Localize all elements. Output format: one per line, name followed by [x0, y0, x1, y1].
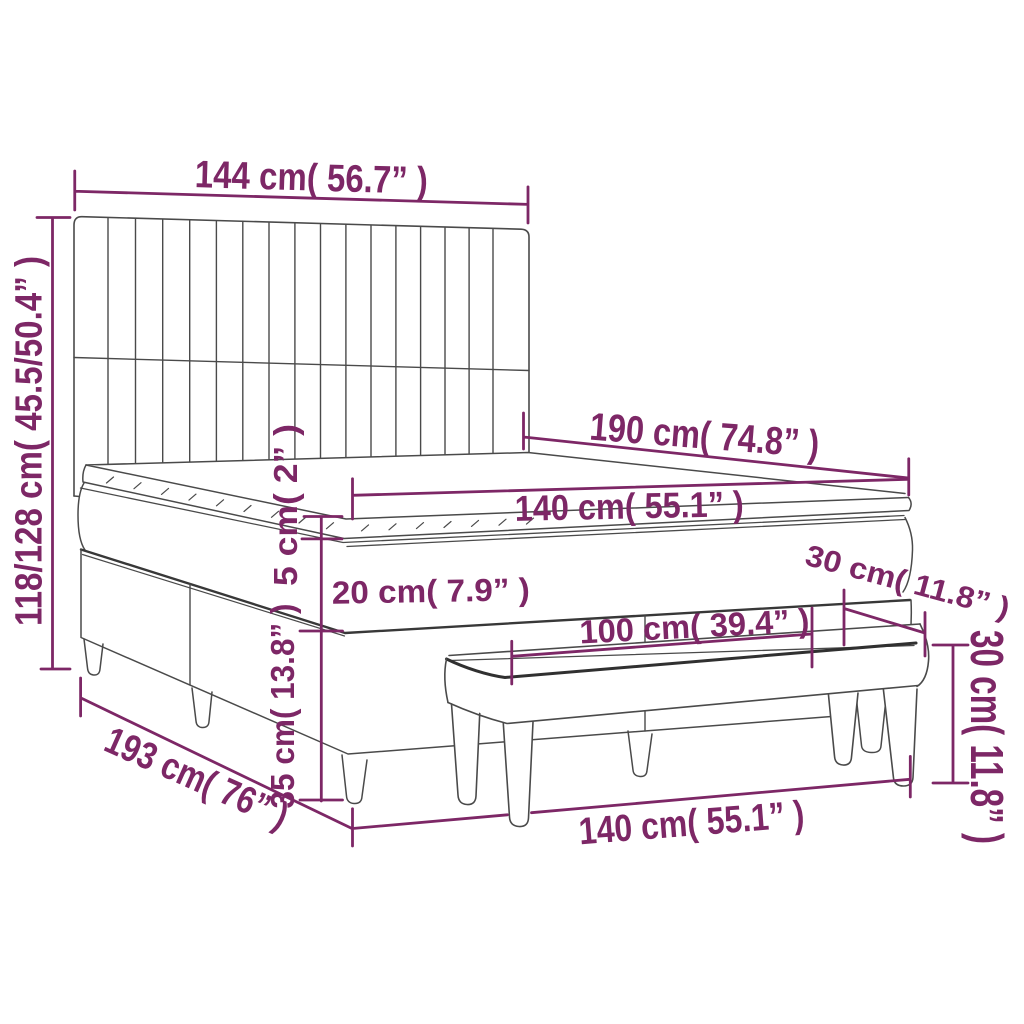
svg-text:144 cm( 56.7” ): 144 cm( 56.7” ): [194, 153, 428, 203]
svg-text:30 cm( 11.8” ): 30 cm( 11.8” ): [802, 539, 1013, 625]
svg-text:190 cm( 74.8” ): 190 cm( 74.8” ): [588, 406, 821, 467]
svg-text:5 cm( 2” ): 5 cm( 2” ): [267, 424, 304, 586]
svg-text:140 cm( 55.1” ): 140 cm( 55.1” ): [514, 483, 744, 529]
svg-text:30 cm( 11.8” ): 30 cm( 11.8” ): [961, 630, 1013, 844]
svg-text:35 cm( 13.8” ): 35 cm( 13.8” ): [264, 604, 301, 809]
svg-text:140 cm( 55.1” ): 140 cm( 55.1” ): [577, 794, 806, 854]
svg-text:118/128 cm( 45.5/50.4” ): 118/128 cm( 45.5/50.4” ): [9, 256, 51, 626]
svg-text:20 cm( 7.9” ): 20 cm( 7.9” ): [332, 571, 531, 610]
